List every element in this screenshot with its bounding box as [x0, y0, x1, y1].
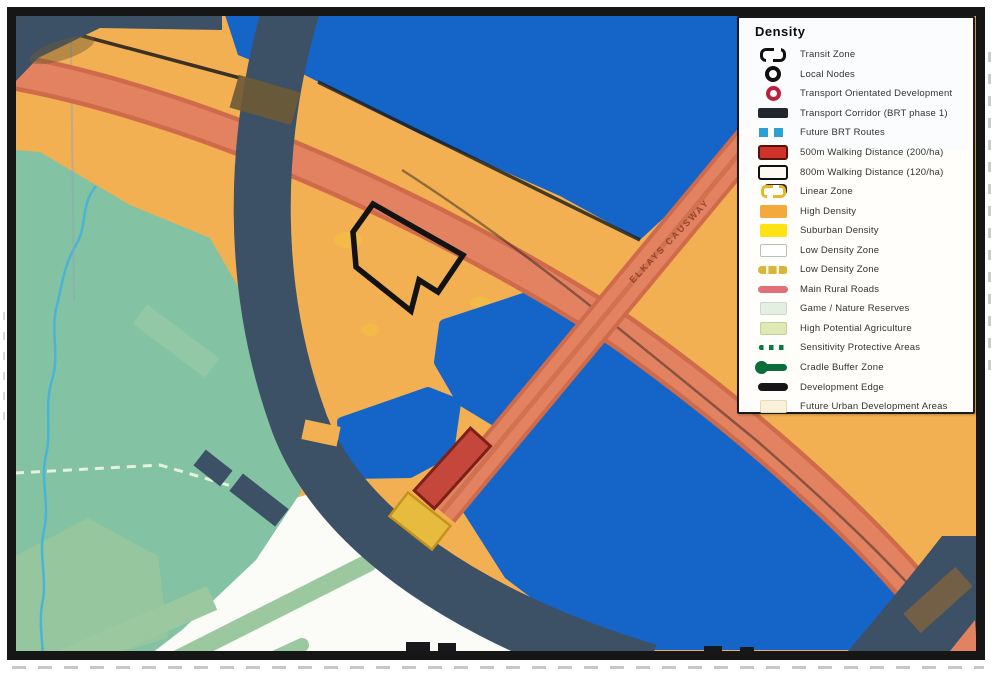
legend-item-future-brt-routes: Future BRT Routes: [755, 123, 967, 143]
development-edge-icon: [758, 383, 788, 391]
sensitivity-protective-areas-icon: [759, 345, 788, 350]
legend-item-high-potential-agriculture: High Potential Agriculture: [755, 319, 967, 339]
transport-orientated-development-icon: [766, 86, 781, 101]
legend-item-linear-zone: Linear Zone: [755, 182, 967, 202]
future-brt-routes-icon: [759, 128, 788, 137]
legend-item-development-edge: Development Edge: [755, 377, 967, 397]
linear-zone-icon: [761, 185, 786, 198]
legend-item-future-urban-development-areas: Future Urban Development Areas: [755, 397, 967, 417]
scan-noise-left: [3, 312, 5, 422]
legend-item-main-rural-roads: Main Rural Roads: [755, 280, 967, 300]
legend-item-walking-distance-800m: 800m Walking Distance (120/ha): [755, 162, 967, 182]
legend-item-local-nodes: Local Nodes: [755, 65, 967, 85]
legend-item-low-density-zone-line: Low Density Zone: [755, 260, 967, 280]
future-urban-development-areas-icon: [760, 400, 787, 413]
main-rural-roads-icon: [758, 286, 788, 293]
suburban-density-icon: [760, 224, 787, 237]
walking-distance-800m-icon: [758, 165, 788, 180]
legend-item-cradle-buffer-zone: Cradle Buffer Zone: [755, 358, 967, 378]
local-nodes-icon: [765, 66, 781, 82]
legend-item-transport-orientated-development: Transport Orientated Development: [755, 84, 967, 104]
low-density-zone-line-icon: [758, 266, 788, 274]
scan-noise-right: [988, 52, 991, 370]
high-potential-agriculture-icon: [760, 322, 787, 335]
legend-item-high-density: High Density: [755, 201, 967, 221]
scanned-density-map-page: ELKAYS CAUSWAY Density Transit Zone Loca…: [0, 0, 1000, 682]
walking-distance-500m-icon: [758, 145, 788, 160]
low-density-zone-icon: [760, 244, 787, 257]
legend-item-transport-corridor: Transport Corridor (BRT phase 1): [755, 104, 967, 124]
legend-item-game-nature-reserves: Game / Nature Reserves: [755, 299, 967, 319]
legend-item-transit-zone: Transit Zone: [755, 45, 967, 65]
scan-noise-bottom: [12, 666, 984, 669]
cradle-buffer-zone-icon: [759, 364, 787, 371]
transport-corridor-icon: [758, 108, 788, 118]
legend-item-suburban-density: Suburban Density: [755, 221, 967, 241]
legend-panel: Density Transit Zone Local Nodes Transpo…: [737, 16, 975, 414]
legend-item-low-density-zone: Low Density Zone: [755, 240, 967, 260]
transit-zone-icon: [760, 48, 786, 62]
legend-item-sensitivity-protective-areas: Sensitivity Protective Areas: [755, 338, 967, 358]
legend-item-walking-distance-500m: 500m Walking Distance (200/ha): [755, 143, 967, 163]
game-nature-reserves-icon: [760, 302, 787, 315]
high-density-icon: [760, 205, 787, 218]
legend-title: Density: [755, 24, 967, 41]
